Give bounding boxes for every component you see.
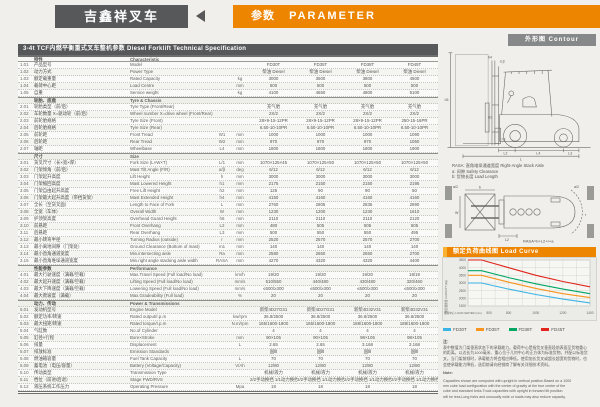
spec-row: 2.07轴距WheelbaseL4mm1800180018001900 (18, 146, 438, 153)
legend-item: FD35T (476, 327, 500, 332)
svg-text:L2: L2 (504, 152, 508, 156)
svg-text:额定载重量 CAPACITY (kg): 额定载重量 CAPACITY (kg) (444, 280, 448, 313)
note-label-en: Note: (443, 370, 596, 376)
legend-swatch (509, 328, 517, 332)
spec-row: 3.02门架倾角（前/后）Mast Tilt Angle (F/R)α/βdeg… (18, 167, 438, 174)
contour-top-view-drawing: a/2 a/2 b W L2 r RASA=b+L2+r+a (441, 180, 598, 244)
spec-row: 2.02车轮数量 X=驱动轮（前/后）Wheel number X=drive … (18, 111, 438, 118)
spec-row: 5.03最大扭矩/转速Rated torque/r.p.mN.m/rpm165/… (18, 321, 438, 328)
spec-section-row: 轮胎、底盘Tyre & Chassis (18, 97, 438, 104)
spec-row: 3.05门架自由起升高度Free Lift Heighth2mm12590905… (18, 188, 438, 195)
spec-row: 2.06后轮距Rear TreadW2mm9709709701060 (18, 139, 438, 146)
page-title-cn: 参数 (251, 10, 275, 22)
spec-row: 2.03前轮胎规格Tyre Size (Front)28×9-15-12PR28… (18, 118, 438, 125)
legend-label: FD38T (519, 327, 533, 332)
svg-text:1200: 1200 (559, 311, 566, 315)
page-title-en: PARAMETER (289, 10, 376, 22)
load-curve-legend: FD30TFD35TFD38TFD45T (443, 327, 596, 332)
svg-text:b: b (479, 186, 481, 190)
spec-row: 3.09护顶架高度Overhead Guard Heighth6mm211021… (18, 216, 438, 223)
svg-text:4000: 4000 (459, 266, 466, 270)
legend-swatch (443, 328, 451, 332)
spec-row: 2.01轮胎类型（前/后）Tyre Type (Front/Rear)充气胎充气… (18, 104, 438, 111)
catalog-page: 吉鑫祥叉车 参数 PARAMETER 3-4t TCF内燃平衡重式叉车整机参数 … (0, 0, 600, 407)
svg-text:L: L (520, 158, 522, 161)
spec-row: 3.06门架最大起升高度（带挡货架）Mast Extended Heighth4… (18, 195, 438, 202)
spec-row: 5.04气缸数No.of Cylinder4444 (18, 328, 438, 335)
brand-logo: 吉鑫祥叉车 (55, 5, 188, 28)
note-text-cn: 表中数值为门架垂直状态下的承载能力。载荷中心是指货叉垂直段前表面至货物重心的距离… (443, 345, 596, 368)
spec-row: 1.04载荷中心距Load Centremm500500500500 (18, 83, 438, 90)
spec-row: 5.06排量DisplacementL2.652.653.1683.168 (18, 342, 438, 349)
svg-text:RASA=b+L2+r+a: RASA=b+L2+r+a (523, 239, 554, 244)
svg-text:1500: 1500 (459, 304, 466, 308)
svg-text:4500: 4500 (459, 258, 466, 262)
spec-row: 1.02动力方式Power Type柴油 Diesel柴油 Diesel柴油 D… (18, 69, 438, 76)
svg-text:W: W (455, 211, 459, 215)
spec-table: 3-4t TCF内燃平衡重式叉车整机参数 Diesel Forklift Tec… (18, 44, 438, 394)
legend-label: FD35T (486, 327, 500, 332)
spec-row: 4.04最大爬坡度（满载）Max.Gradeability (Full load… (18, 293, 438, 300)
note-line: 叉。当门架前倾时，承载能力将会相应降低。使用加长货叉或超长超宽的货物时，也 (443, 356, 596, 362)
spec-row: 2.05前轮距Front TreadW1mm1000100010001090 (18, 132, 438, 139)
page-title: 参数 PARAMETER (233, 5, 600, 28)
spec-row: 3.14最小直角通道宽度Min.intersecting aisleRamm25… (18, 251, 438, 258)
load-curve-title: 额定负荷曲线图 Load Curve (443, 247, 596, 258)
load-curve-chart: 4500 4000 3500 3000 2500 2000 1500载荷中心 L… (443, 258, 596, 320)
legend-item: FD38T (509, 327, 533, 332)
top-view-lines (445, 186, 594, 238)
spec-row: 3.04门架缩回高度Mast Lowered Heighth1mm2175215… (18, 181, 438, 188)
spec-row: 5.11档位（前进/后退）Stage FWD/RVS2/2手动换挡 1/1动力换… (18, 377, 438, 384)
svg-text:1000: 1000 (532, 311, 539, 315)
svg-text:500: 500 (486, 311, 492, 315)
spec-row: 3.13最小离地间隙（门架处）Ground Clearance (Bottom … (18, 244, 438, 251)
spec-table-body: 特性Characteristic1.01产品型号ModelFD30TFD35TF… (18, 55, 438, 394)
brand-arrow-icon (196, 10, 205, 22)
spec-row: 5.05缸径×行程Bore×Strokemm90×10590×10598×105… (18, 335, 438, 342)
note-line: 会使承载能力降低，选用前请向经销商了解有关详细技术资料。 (443, 362, 596, 368)
svg-text:1400: 1400 (586, 311, 593, 315)
svg-text:h1: h1 (488, 115, 492, 119)
legend-label: FD30T (453, 327, 467, 332)
spec-row: 5.01发动机型号Engine Model新柴4D27G31新柴4D27G31新… (18, 307, 438, 314)
spec-row: 3.07全长（至货叉面）Length to Face of ForkLmm276… (18, 202, 438, 209)
note-text-en: Capacities shown are computed with uprig… (443, 379, 596, 400)
spec-row: 3.12最小转弯半径Turning Radius (outside)rmm252… (18, 237, 438, 244)
svg-text:载荷中心 LOAD CENTER (mm): 载荷中心 LOAD CENTER (mm) (444, 311, 482, 315)
spec-row: 5.08燃油箱容量Fuel Tank CapacityL70707070 (18, 356, 438, 363)
svg-text:a/2: a/2 (453, 185, 458, 189)
spec-row: 5.09蓄电池（电压/容量）Battery (Voltage/Capacity)… (18, 363, 438, 370)
spec-row: 4.03最大下降速度（满载/空载）Lowering Speed (Full lo… (18, 286, 438, 293)
spec-row: 3.15最小直角堆垛通道宽度Min.right angle stacking a… (18, 258, 438, 265)
spec-row: 5.07排放标准Emission Standards国Ⅲ国Ⅲ国Ⅲ国Ⅲ (18, 349, 438, 356)
spec-row: 3.01货叉尺寸（长×宽×厚）Fork Size (L×W×T)L/1mm107… (18, 160, 438, 167)
svg-text:α β: α β (500, 59, 505, 63)
svg-text:2500: 2500 (459, 289, 466, 293)
rasa-description: RASA: 直角堆垛通道宽度 Right-Angle Stack Aisle a… (452, 163, 598, 180)
note-line: will be less.Long forks and unusually wi… (443, 395, 596, 400)
notes-block: 注： 表中数值为门架垂直状态下的承载能力。载荷中心是指货叉垂直段前表面至货物重心… (443, 339, 596, 400)
spec-row: 1.03额定载重量Rated Capacitykg300035003800450… (18, 76, 438, 83)
legend-swatch (476, 328, 484, 332)
legend-swatch (541, 328, 549, 332)
spec-row: 4.02最大起升速度（满载/空载）Lifting Speed (Full loa… (18, 279, 438, 286)
spec-row: 3.11后悬距Rear OverhangL3mm500550550495 (18, 230, 438, 237)
svg-text:h3: h3 (445, 98, 449, 102)
svg-text:L4: L4 (536, 152, 540, 156)
spec-row: 5.10传动类型Transmission Type机械/液力机械/液力机械/液力… (18, 370, 438, 377)
spec-table-title: 3-4t TCF内燃平衡重式叉车整机参数 Diesel Forklift Tec… (18, 44, 438, 55)
svg-text:h4: h4 (488, 56, 492, 60)
svg-text:L3: L3 (568, 152, 572, 156)
spec-row: 5.12液压系统工作压力Operating PressureMpa1818181… (18, 384, 438, 391)
svg-text:L2: L2 (505, 238, 509, 242)
spec-row: 1.05自重Service weightkg4100465048005100 (18, 90, 438, 97)
svg-text:3500: 3500 (459, 274, 466, 278)
legend-label: FD45T (551, 327, 565, 332)
spec-header-row: 特性Characteristic (18, 55, 438, 62)
svg-text:a/2: a/2 (574, 185, 579, 189)
contour-side-view-drawing: h3 h4 α β h1 h2 L2 L4 L3 L (441, 47, 598, 161)
svg-text:3000: 3000 (459, 281, 466, 285)
spec-section-row: 尺寸Size (18, 153, 438, 160)
spec-row: 3.10前悬距Front OverhangL2mm480505505505 (18, 223, 438, 230)
legend-item: FD30T (443, 327, 467, 332)
svg-text:h2: h2 (502, 138, 506, 142)
side-view-lines (448, 53, 591, 158)
spec-row: 3.03门架起升高度Lift Heighthmm3000300030003000 (18, 174, 438, 181)
spec-row: 4.01最大行驶速度（满载/空载）Max.Travel Speed (Full … (18, 272, 438, 279)
svg-text:800: 800 (506, 311, 512, 315)
spec-row: 5.02额定功率/转速Rated output/r.p.mkw/rpm36.8/… (18, 314, 438, 321)
spec-row: 2.04后轮胎规格Tyre Size (Rear)6.50-10-10PR6.5… (18, 125, 438, 132)
spec-row: 1.01产品型号ModelFD30TFD35TFD38TFD45T (18, 62, 438, 69)
spec-section-row: 性能参数Performance (18, 265, 438, 272)
legend-item: FD45T (541, 327, 565, 332)
contour-label: 外形图 Contour (508, 34, 596, 46)
spec-section-row: 动力、传动Power & Transmissions (18, 300, 438, 307)
svg-text:r: r (585, 213, 587, 217)
svg-text:2000: 2000 (459, 297, 466, 301)
spec-row: 3.08全宽（车体）Overall WidthWmm12301200123016… (18, 209, 438, 216)
